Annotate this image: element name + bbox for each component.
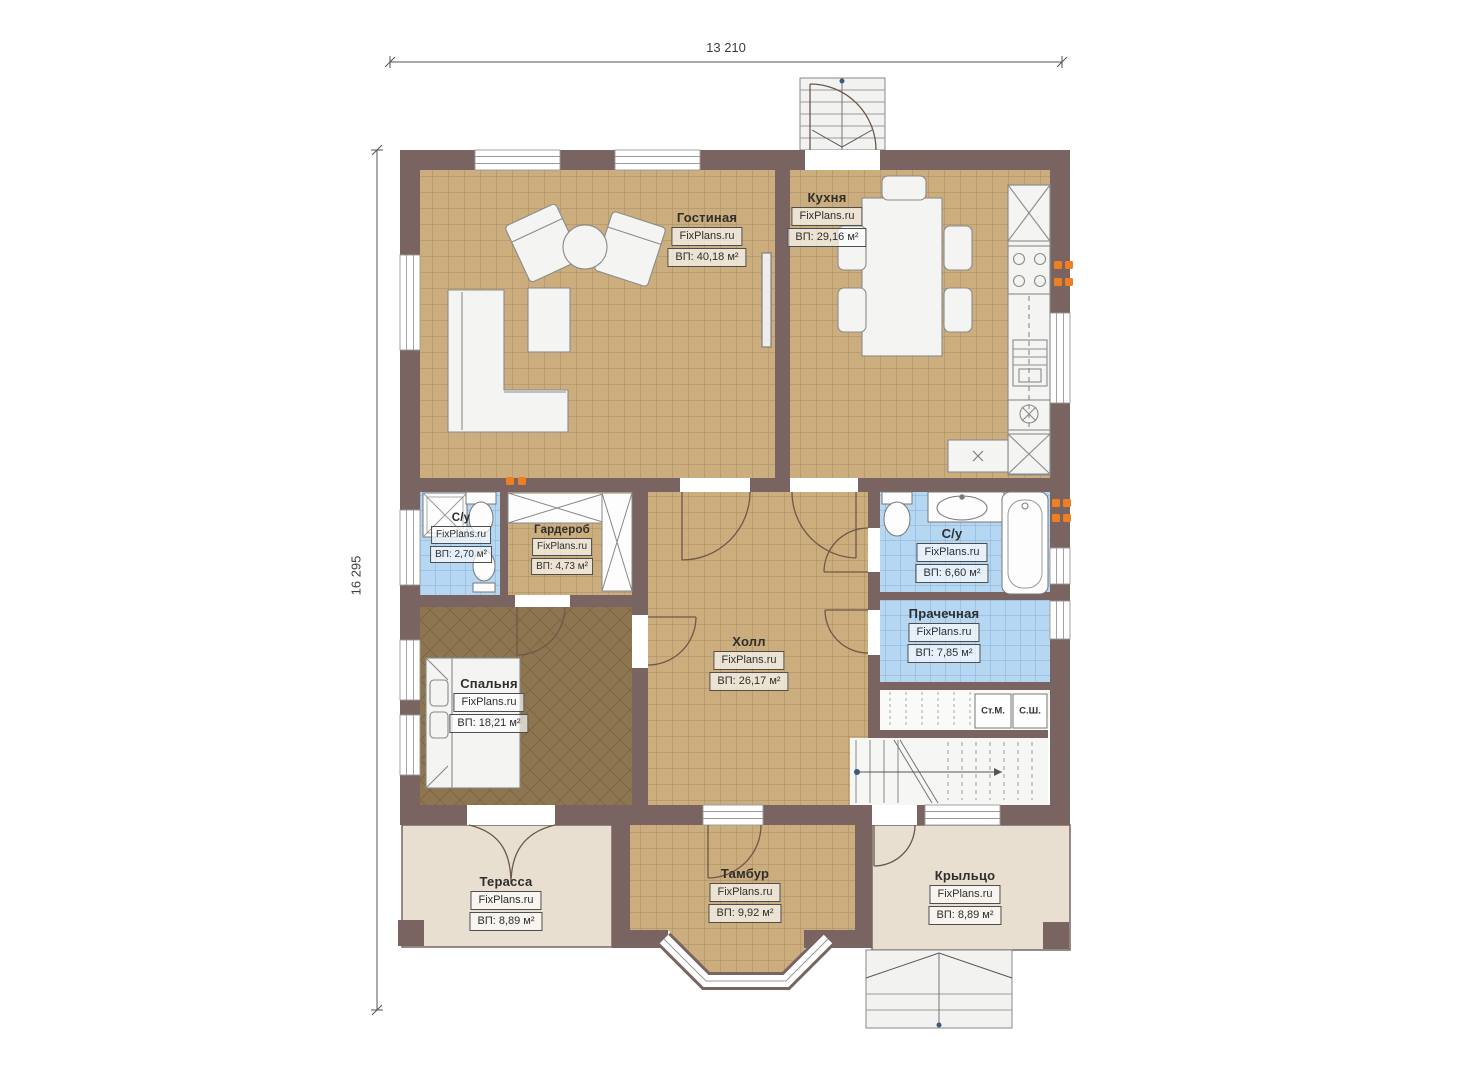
room-label-hall: Холл FixPlans.ru ВП: 26,17 м²: [709, 634, 788, 691]
kitchen-island: [948, 440, 1008, 472]
window: [703, 805, 763, 825]
window: [400, 255, 420, 350]
watermark: FixPlans.ru: [709, 883, 780, 902]
window: [925, 805, 1000, 825]
watermark: FixPlans.ru: [929, 885, 1000, 904]
outlet-icon: [1065, 278, 1073, 286]
toilet: [882, 492, 912, 536]
bottom-exterior-stair: [866, 950, 1012, 1028]
room-name: С/у: [452, 512, 471, 524]
watermark: FixPlans.ru: [532, 538, 592, 556]
room-name: Терасса: [480, 874, 533, 889]
outlet-icon: [506, 477, 514, 485]
window: [400, 510, 420, 585]
room-name: Крыльцо: [935, 868, 996, 883]
room-area: ВП: 8,89 м²: [928, 906, 1001, 925]
watermark: FixPlans.ru: [916, 543, 987, 562]
room-area: ВП: 8,89 м²: [469, 912, 542, 931]
tv-unit: [762, 253, 771, 347]
closet: [508, 493, 606, 523]
room-area: ВП: 26,17 м²: [709, 672, 788, 691]
chair: [944, 288, 972, 332]
dimension-height-label: 16 295: [348, 556, 363, 596]
outlet-icon: [1054, 278, 1062, 286]
window: [1050, 313, 1070, 403]
dining-table: [862, 198, 942, 356]
room-name: Гардероб: [534, 524, 590, 536]
room-label-living: Гостиная FixPlans.ru ВП: 40,18 м²: [667, 210, 746, 267]
room-area: ВП: 6,60 м²: [915, 564, 988, 583]
pillow: [430, 712, 448, 738]
watermark: FixPlans.ru: [671, 227, 742, 246]
room-label-vestibule: Тамбур FixPlans.ru ВП: 9,92 м²: [708, 866, 781, 923]
room-area: ВП: 2,70 м²: [430, 546, 492, 564]
watermark: FixPlans.ru: [791, 207, 862, 226]
chair: [882, 176, 926, 200]
dimension-width-label: 13 210: [706, 40, 746, 55]
outlet-icon: [1054, 261, 1062, 269]
outlet-icon: [1063, 499, 1071, 507]
top-exterior-stair: [800, 78, 885, 150]
window: [1050, 548, 1070, 584]
window: [400, 640, 420, 700]
room-name: Прачечная: [909, 606, 980, 621]
room-label-kitchen: Кухня FixPlans.ru ВП: 29,16 м²: [787, 190, 866, 247]
floor-plan-canvas: 13 210 16 295 Гостиная FixPlans.ru ВП: 4…: [0, 0, 1474, 1080]
watermark: FixPlans.ru: [431, 526, 491, 544]
vanity-sink: [928, 492, 1004, 522]
room-label-porch: Крыльцо FixPlans.ru ВП: 8,89 м²: [928, 868, 1001, 925]
room-name: Кухня: [807, 190, 846, 205]
closet: [602, 493, 632, 591]
pillow: [430, 680, 448, 706]
room-label-bathroom-small: С/у FixPlans.ru ВП: 2,70 м²: [430, 512, 492, 563]
room-label-bathroom-main: С/у FixPlans.ru ВП: 6,60 м²: [915, 526, 988, 583]
outlet-icon: [1052, 499, 1060, 507]
kitchen-counter: [1008, 185, 1050, 475]
room-label-terrace: Терасса FixPlans.ru ВП: 8,89 м²: [469, 874, 542, 931]
room-name: Холл: [732, 634, 765, 649]
outlet-icon: [518, 477, 526, 485]
round-table: [563, 225, 607, 269]
room-label-laundry: Прачечная FixPlans.ru ВП: 7,85 м²: [907, 606, 980, 663]
room-name: Тамбур: [721, 866, 769, 881]
outlet-icon: [1065, 261, 1073, 269]
bathtub: [1002, 492, 1048, 594]
room-area: ВП: 18,21 м²: [449, 714, 528, 733]
coffee-table: [528, 288, 570, 352]
watermark: FixPlans.ru: [453, 693, 524, 712]
drying-cabinet-label: С.Ш.: [1019, 706, 1041, 717]
chair: [944, 226, 972, 270]
room-area: ВП: 4,73 м²: [531, 558, 593, 576]
washing-machine-label: Ст.М.: [981, 706, 1005, 717]
outlet-icon: [1052, 514, 1060, 522]
room-name: С/у: [942, 526, 963, 541]
room-area: ВП: 29,16 м²: [787, 228, 866, 247]
room-name: Гостиная: [677, 210, 737, 225]
watermark: FixPlans.ru: [470, 891, 541, 910]
window: [400, 715, 420, 775]
room-label-bedroom: Спальня FixPlans.ru ВП: 18,21 м²: [449, 676, 528, 733]
room-label-wardrobe: Гардероб FixPlans.ru ВП: 4,73 м²: [531, 524, 593, 575]
window: [475, 150, 560, 170]
window: [615, 150, 700, 170]
watermark: FixPlans.ru: [908, 623, 979, 642]
room-name: Спальня: [460, 676, 518, 691]
room-area: ВП: 9,92 м²: [708, 904, 781, 923]
room-area: ВП: 40,18 м²: [667, 248, 746, 267]
watermark: FixPlans.ru: [713, 651, 784, 670]
room-area: ВП: 7,85 м²: [907, 644, 980, 663]
outlet-icon: [1063, 514, 1071, 522]
window: [1050, 601, 1070, 639]
chair: [838, 288, 866, 332]
